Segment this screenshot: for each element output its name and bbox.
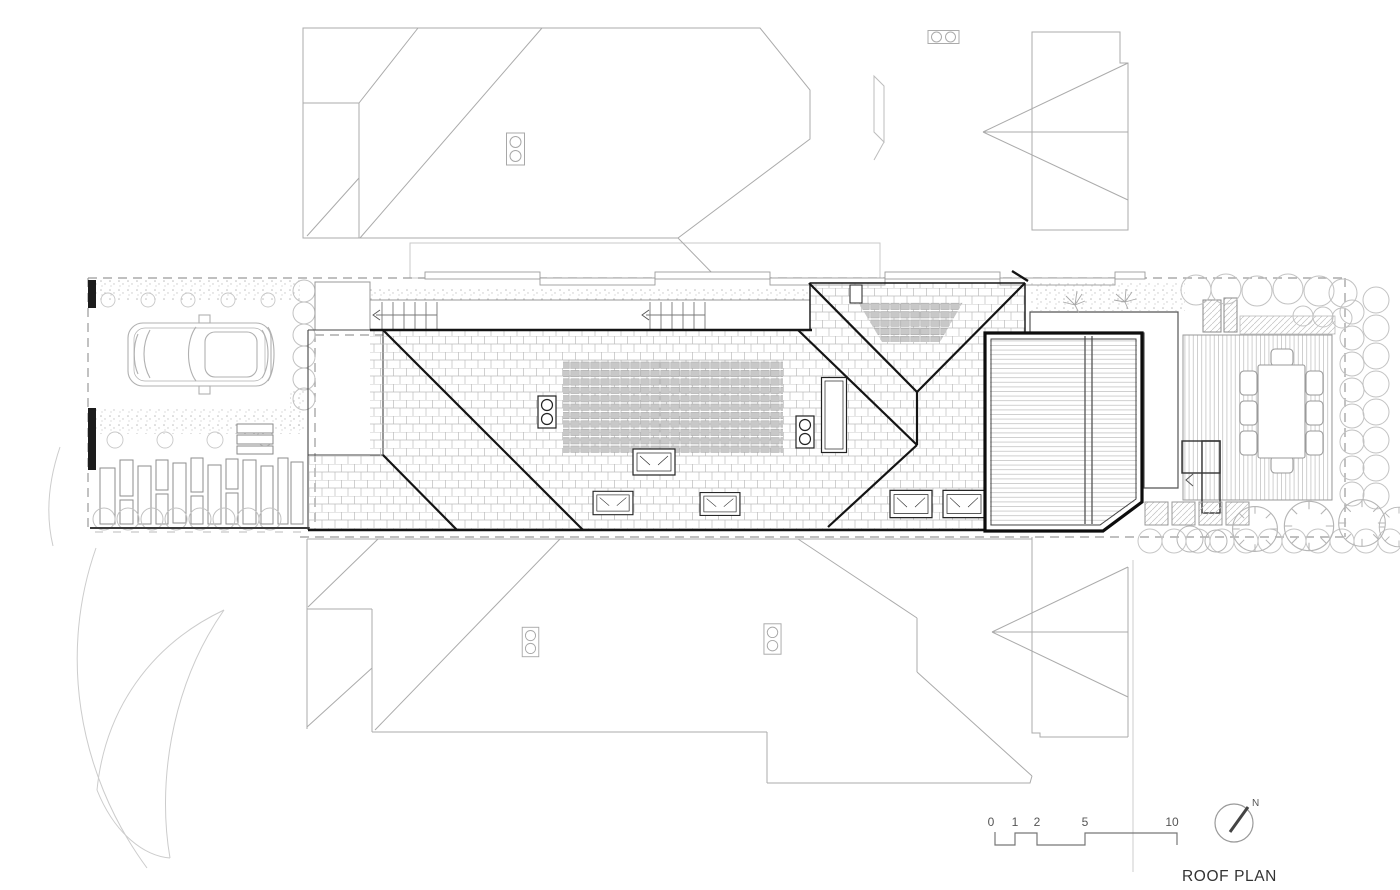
chimney-vent-icon	[522, 627, 539, 656]
garden-bed	[1030, 283, 1185, 311]
chimney-vent-icon	[928, 31, 959, 44]
chimney-vent-icon	[507, 133, 525, 165]
boundary-wall-post	[88, 280, 96, 308]
chair	[1240, 371, 1257, 395]
solar-panel-array	[563, 360, 783, 453]
neighbor-building-north	[303, 28, 884, 278]
roof-plan-drawing: 0 1 2 5 10 N ROOF PLAN	[0, 0, 1400, 890]
hedge-bed	[92, 279, 300, 300]
scale-bar-line	[995, 832, 1177, 845]
chair	[1240, 431, 1257, 455]
shrub-row	[293, 280, 315, 410]
bench-planks	[237, 424, 273, 454]
north-hedge-strip	[370, 289, 810, 301]
chair	[1306, 401, 1323, 425]
dining-table	[1258, 365, 1305, 458]
garden-bed	[1240, 316, 1335, 334]
north-label: N	[1252, 798, 1259, 809]
legend: 0 1 2 5 10 N ROOF PLAN	[988, 798, 1277, 885]
scale-label-1: 1	[1012, 815, 1019, 829]
covered-deck	[985, 312, 1178, 531]
deck-battens	[990, 338, 1137, 526]
neighbor-north-shed	[874, 76, 884, 160]
entry-canopy	[315, 282, 370, 330]
scale-label-0: 0	[988, 815, 995, 829]
chair	[1271, 349, 1293, 366]
paving-slabs	[100, 458, 303, 524]
roof-vent-icon	[796, 416, 814, 448]
chair	[1306, 431, 1323, 455]
scale-label-10: 10	[1165, 815, 1179, 829]
boundary-wall-post	[88, 408, 96, 470]
page-title: ROOF PLAN	[1182, 868, 1277, 885]
parked-car	[128, 315, 274, 394]
scale-label-5: 5	[1082, 815, 1089, 829]
roof-vent-icon	[850, 285, 862, 303]
chair	[1240, 401, 1257, 425]
chair	[1306, 371, 1323, 395]
roof-light-strip	[822, 378, 847, 453]
hedge-column	[1340, 287, 1389, 509]
front-yard	[88, 279, 315, 532]
north-arrow: N	[1215, 798, 1259, 842]
north-arrow-needle	[1230, 807, 1248, 832]
roof-plan-svg: 0 1 2 5 10 N ROOF PLAN	[0, 0, 1400, 890]
chimney-vent-icon	[764, 624, 781, 654]
walkway-stairs	[373, 302, 705, 329]
planter	[1203, 300, 1221, 332]
scale-label-2: 2	[1034, 815, 1041, 829]
neighbor-building-south	[307, 537, 1128, 783]
roof-vent-icon	[538, 396, 556, 428]
scale-bar: 0 1 2 5 10	[988, 815, 1179, 845]
neighbor-building-northeast	[928, 31, 1128, 231]
